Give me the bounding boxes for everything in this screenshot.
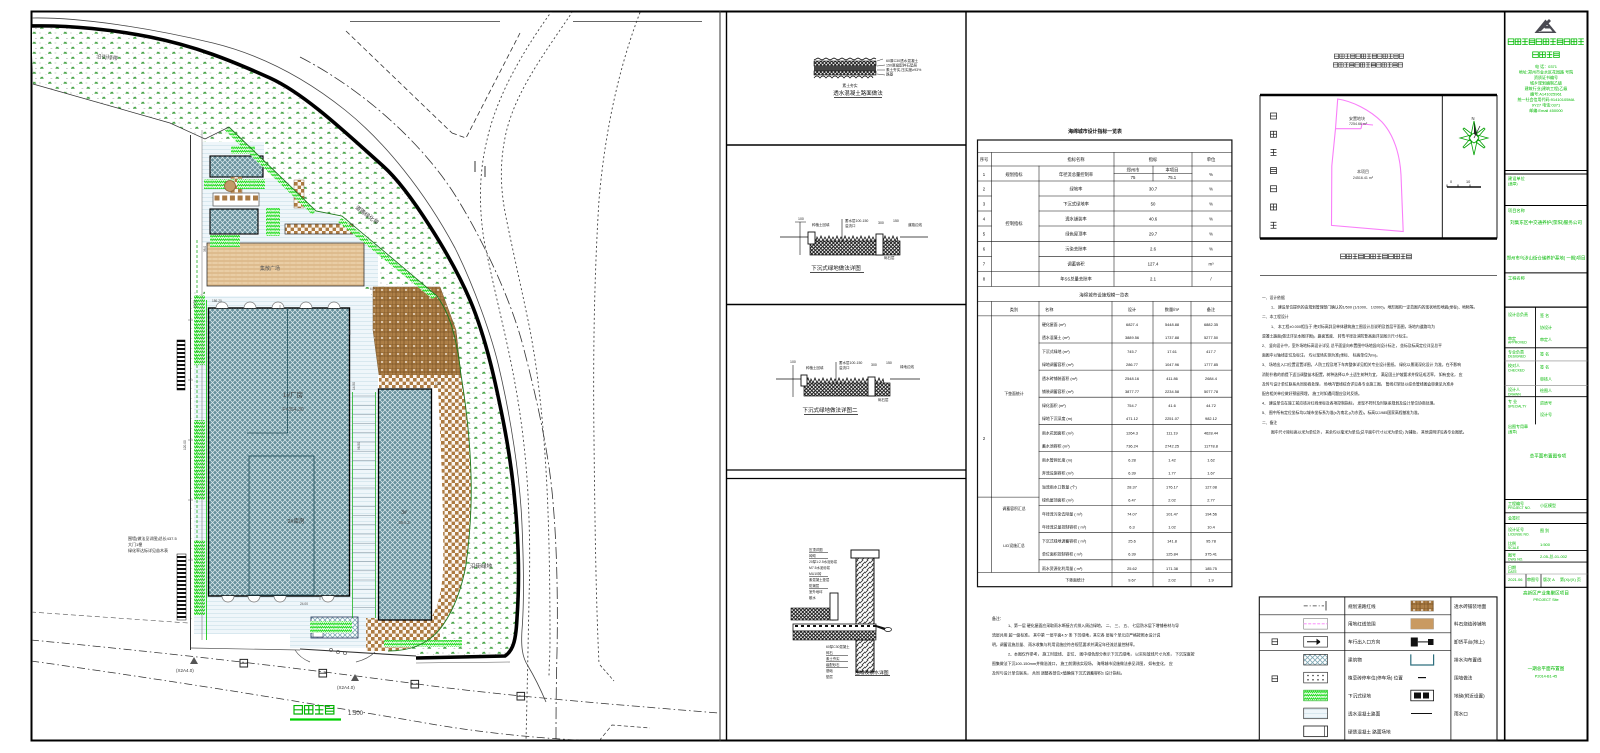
svg-text:6.47: 6.47 xyxy=(1128,498,1136,503)
svg-text:2#库房: 2#库房 xyxy=(287,517,305,525)
svg-text:24516.41 m²: 24516.41 m² xyxy=(1353,176,1374,180)
svg-text:料石烧结砖铺地: 料石烧结砖铺地 xyxy=(1454,621,1487,628)
svg-text:6.3: 6.3 xyxy=(1129,525,1134,530)
svg-text:本项目: 本项目 xyxy=(1357,168,1369,174)
svg-text:种植土回填: 种植土回填 xyxy=(806,365,824,370)
svg-text:设计人: 设计人 xyxy=(1508,386,1520,392)
svg-text:沿街绿地: 沿街绿地 xyxy=(470,562,493,570)
svg-text:资质号: 资质号 xyxy=(1540,400,1552,406)
svg-text:4628.44: 4628.44 xyxy=(1204,430,1219,435)
svg-text:工程名称: 工程名称 xyxy=(1508,275,1525,282)
svg-text:471.12: 471.12 xyxy=(1126,416,1138,421)
svg-text:CHECKED: CHECKED xyxy=(1508,369,1525,373)
svg-text:%: % xyxy=(1209,172,1213,177)
svg-text:417.7: 417.7 xyxy=(1206,349,1216,354)
svg-text:下沉式绿地调蓄容积 ( m³): 下沉式绿地调蓄容积 ( m³) xyxy=(1042,539,1087,544)
svg-text:(盖章): (盖章) xyxy=(1508,429,1517,434)
svg-text:982.12: 982.12 xyxy=(1205,416,1217,421)
svg-text:6.0: 6.0 xyxy=(370,287,375,291)
svg-text:防潮层: 防潮层 xyxy=(809,583,820,588)
svg-text:校对人: 校对人 xyxy=(1508,362,1520,368)
svg-text:碎石: 碎石 xyxy=(826,650,833,655)
svg-text:150: 150 xyxy=(893,219,899,223)
svg-text:F=354.30: F=354.30 xyxy=(282,407,303,413)
svg-text:围墙做法: 围墙做法 xyxy=(1454,675,1473,682)
svg-text:1047.96: 1047.96 xyxy=(1165,362,1179,367)
svg-text:(X2A4.0): (X2A4.0) xyxy=(337,685,355,690)
svg-text:5448.88: 5448.88 xyxy=(1165,322,1179,327)
svg-text:硬质混凝土 路面场地: 硬质混凝土 路面场地 xyxy=(1348,729,1391,736)
svg-text:流层共用 超一级标准。 其中第 一层平面4.5’ 条 下: 流层共用 超一级标准。 其中第 一层平面4.5’ 条 下凹绿地，其它各 层每个单… xyxy=(992,633,1160,638)
svg-text:植草砖停车位(停车场) 位置: 植草砖停车位(停车场) 位置 xyxy=(1348,675,1403,682)
svg-text:3#: 3# xyxy=(401,510,407,516)
svg-text:1.77: 1.77 xyxy=(1168,470,1176,475)
svg-text:郑州市: 郑州市 xyxy=(1127,167,1141,174)
svg-text:会签栏: 会签栏 xyxy=(1508,515,1520,521)
svg-text:硬化屋面 (m²): 硬化屋面 (m²) xyxy=(1042,322,1066,327)
svg-text:年径流总量控制率: 年径流总量控制率 xyxy=(1059,171,1094,178)
svg-text:176.17: 176.17 xyxy=(1166,485,1178,490)
svg-text:1.02: 1.02 xyxy=(1168,525,1176,530)
svg-text:雨水口: 雨水口 xyxy=(1454,711,1468,718)
svg-text:设计号: 设计号 xyxy=(1540,411,1552,417)
svg-text:透水混凝土路面: 透水混凝土路面 xyxy=(1348,711,1381,718)
svg-text:一期总平面布置图: 一期总平面布置图 xyxy=(1528,665,1565,672)
svg-text:7254.66 m²: 7254.66 m² xyxy=(1349,122,1368,126)
svg-text:127.08: 127.08 xyxy=(1205,485,1217,490)
svg-text:5077.78: 5077.78 xyxy=(1204,389,1218,394)
svg-text:下垫面统计: 下垫面统计 xyxy=(1004,391,1024,396)
svg-text:绿地下沉深度 (m): 绿地下沉深度 (m) xyxy=(1042,416,1073,421)
svg-text:蓄水层100-150: 蓄水层100-150 xyxy=(845,218,868,223)
svg-text:194.56: 194.56 xyxy=(1205,512,1217,517)
svg-text:95.78: 95.78 xyxy=(1206,539,1216,544)
svg-text:(盖章): (盖章) xyxy=(1508,181,1518,186)
svg-text:P2014-B1-45: P2014-B1-45 xyxy=(1535,675,1557,679)
svg-text:40.6: 40.6 xyxy=(1149,217,1158,222)
svg-text:邮编:Email 450000: 邮编:Email 450000 xyxy=(1529,107,1563,113)
svg-text:DRAWN: DRAWN xyxy=(1508,393,1521,397)
svg-text:100: 100 xyxy=(790,360,796,364)
svg-text:序号: 序号 xyxy=(980,156,989,163)
svg-text:素土夯实: 素土夯实 xyxy=(842,83,857,88)
svg-text:9.67: 9.67 xyxy=(1128,578,1136,583)
svg-text:集散广场: 集散广场 xyxy=(260,265,280,272)
svg-text:24.00: 24.00 xyxy=(300,602,308,606)
svg-text:资质证书编号: 资质证书编号 xyxy=(1534,74,1558,80)
svg-text:高新区产业集聚区项目: 高新区产业集聚区项目 xyxy=(1523,590,1569,597)
svg-text:名称: 名称 xyxy=(1045,306,1053,313)
svg-text:指标: 指标 xyxy=(1149,156,1158,163)
svg-text:绿化率达标详见苗木表: 绿化率达标详见苗木表 xyxy=(128,547,168,553)
svg-text:透水混凝土路面做法: 透水混凝土路面做法 xyxy=(833,89,883,97)
svg-text:736.24: 736.24 xyxy=(1126,443,1139,448)
svg-text:120.00: 120.00 xyxy=(183,440,187,450)
svg-text:素土夯实: 素土夯实 xyxy=(826,656,840,661)
svg-text:二、备注: 二、备注 xyxy=(1262,420,1277,425)
svg-text:绿色屋顶面积 (m²): 绿色屋顶面积 (m²) xyxy=(1042,498,1074,503)
svg-text:备注：: 备注： xyxy=(992,616,1004,621)
svg-text:150厚级配碎石垫层: 150厚级配碎石垫层 xyxy=(886,63,918,68)
svg-text:6827.4: 6827.4 xyxy=(1126,322,1139,327)
svg-text:74.07: 74.07 xyxy=(1127,512,1137,517)
svg-text:下沉式绿地: 下沉式绿地 xyxy=(1348,693,1371,700)
svg-text:围墙及散水详图: 围墙及散水详图 xyxy=(855,669,889,676)
svg-text:PROJECT Site: PROJECT Site xyxy=(1533,598,1558,602)
svg-text:数量/m²: 数量/m² xyxy=(1165,306,1180,313)
svg-text:2.77: 2.77 xyxy=(1207,498,1215,503)
svg-text:海绵城市设计指标一览表: 海绵城市设计指标一览表 xyxy=(1068,128,1122,135)
svg-text:签 名: 签 名 xyxy=(1540,351,1549,357)
svg-text:砾石层: 砾石层 xyxy=(878,397,889,402)
svg-text:绿地调蓄容积 (m³): 绿地调蓄容积 (m³) xyxy=(1042,362,1074,367)
svg-text:41.6: 41.6 xyxy=(1168,403,1176,408)
svg-text:编号:A141025961: 编号:A141025961 xyxy=(1530,91,1563,97)
svg-text:1.42: 1.42 xyxy=(1168,457,1176,462)
svg-text:75: 75 xyxy=(1131,175,1136,180)
svg-text:弃流设施容积 (m³): 弃流设施容积 (m³) xyxy=(1042,470,1074,475)
svg-text:2、本图仅作参考， 施工时放线、 定位、 图中绿色部分表示下: 2、本图仅作参考， 施工时放线、 定位、 图中绿色部分表示下沉式绿地， 以实际放… xyxy=(1008,652,1195,657)
svg-text:签 名: 签 名 xyxy=(1540,312,1549,318)
svg-text:年SS总量去除率: 年SS总量去除率 xyxy=(1060,276,1092,283)
svg-text:LID设施汇总: LID设施汇总 xyxy=(1003,543,1025,548)
svg-text:111.19: 111.19 xyxy=(1166,430,1177,435)
svg-text:第(X)/(X) 页: 第(X)/(X) 页 xyxy=(1560,576,1581,582)
svg-text:基础: 基础 xyxy=(826,668,833,673)
svg-text:砖砌: 砖砌 xyxy=(809,553,816,558)
svg-text:电 话：0371: 电 话：0371 xyxy=(1535,63,1558,69)
svg-text:年径流污染去除量 ( m³): 年径流污染去除量 ( m³) xyxy=(1042,512,1083,517)
svg-text:年径流总量控制容积 ( m³): 年径流总量控制容积 ( m³) xyxy=(1042,525,1087,530)
svg-text:2-05-总-01-002: 2-05-总-01-002 xyxy=(1540,553,1568,559)
svg-text:备注: 备注 xyxy=(1207,306,1216,313)
svg-text:溢流口: 溢流口 xyxy=(839,365,850,370)
svg-text:出图专用章: 出图专用章 xyxy=(1508,423,1528,429)
svg-text:建筑行业(建筑工程)乙级: 建筑行业(建筑工程)乙级 xyxy=(1525,85,1568,91)
svg-text:53.70: 53.70 xyxy=(193,300,197,308)
svg-text:及时与设计单位联系共同协商处理， 场地内管线综合详见各专业施: 及时与设计单位联系共同协商处理， 场地内管线综合详见各专业施工图， 管线打架处以… xyxy=(1262,381,1454,386)
svg-text:286.77: 286.77 xyxy=(1126,362,1138,367)
svg-text:砾石层: 砾石层 xyxy=(884,255,895,260)
svg-text:171.38: 171.38 xyxy=(1166,566,1178,571)
svg-text:SPECIALTY: SPECIALTY xyxy=(1508,405,1527,409)
svg-text:LICENSE NO.: LICENSE NO. xyxy=(1508,533,1530,537)
svg-text:185.75: 185.75 xyxy=(1205,566,1217,571)
svg-text:版次 A: 版次 A xyxy=(1543,576,1555,582)
svg-text:1、第一层 硬化屋面应采取雨水断接方式排入周边绿地， 二、: 1、第一层 硬化屋面应采取雨水断接方式排入周边绿地， 二、 三、 五、 七层防水… xyxy=(1008,623,1179,628)
svg-text:消防扑救的前提下适当调整苗木配置，树种选择以乡土适生树种为宜: 消防扑救的前提下适当调整苗木配置，树种选择以乡土适生树种为宜， 满足固土护坡要求… xyxy=(1262,372,1463,377)
svg-text:3、 场地出入口位置设置详图，人防工程及地下车库整体详见相关: 3、 场地出入口位置设置详图，人防工程及地下车库整体详见相关专业设计图纸。 绿化… xyxy=(1262,362,1461,367)
svg-text:设计总负责: 设计总负责 xyxy=(1508,311,1528,317)
svg-text:道路边线: 道路边线 xyxy=(908,222,922,227)
svg-text:1、 本工程±0.000相当于 绝对标高詳见单体建筑施工图: 1、 本工程±0.000相当于 绝对标高詳见单体建筑施工图设计总说明及首层平面图… xyxy=(1271,324,1435,329)
svg-text:溢流口: 溢流口 xyxy=(845,223,856,228)
svg-text:N: N xyxy=(1472,116,1475,121)
svg-text:2.02: 2.02 xyxy=(1168,498,1176,503)
svg-text:雨水资源化利用量 ( m³): 雨水资源化利用量 ( m³) xyxy=(1042,566,1083,571)
svg-text:地址:郑州市金水区花园路 号院: 地址:郑州市金水区花园路 号院 xyxy=(1519,69,1573,75)
svg-text:配合相关单位做好预留预埋， 施工时如遇问题应及时反馈。: 配合相关单位做好预留预埋， 施工时如遇问题应及时反馈。 xyxy=(1262,391,1362,396)
svg-text:10: 10 xyxy=(1466,180,1470,184)
svg-text:1.67: 1.67 xyxy=(1207,470,1215,475)
svg-text:城乡规划编制乙级: 城乡规划编制乙级 xyxy=(1530,80,1562,86)
svg-text:1737.88: 1737.88 xyxy=(1165,335,1179,340)
svg-text:路基: 路基 xyxy=(886,72,894,77)
svg-text:刘集东区中交通养护(荥阳)服务公司: 刘集东区中交通养护(荥阳)服务公司 xyxy=(1510,219,1582,226)
svg-text:4、 建设单位在施工前应核对红线坐标及各项控制指标， 发现不: 4、 建设单位在施工前应核对红线坐标及各项控制指标， 发现不符时及时联系规划及设… xyxy=(1262,401,1437,406)
svg-text:雨水管网长度 (m): 雨水管网长度 (m) xyxy=(1042,457,1073,462)
svg-text:6.28: 6.28 xyxy=(1128,457,1136,462)
svg-text:本项目: 本项目 xyxy=(1166,167,1179,174)
svg-text:2、 竖向设计中，室外场地标高设计详见 总平面竖向布置图中: 2、 竖向设计中，室外场地标高设计详见 总平面竖向布置图中场地竖向设计标注， 坐… xyxy=(1262,343,1442,348)
svg-text:141.8: 141.8 xyxy=(1167,539,1177,544)
svg-text:项目名称: 项目名称 xyxy=(1508,207,1525,214)
svg-text:明，调蓄设施总量、 雨水收集与利用设施应符合规范要求并满足年: 明，调蓄设施总量、 雨水收集与利用设施应符合规范要求并满足年径流总量控制率。 xyxy=(992,642,1137,647)
svg-text:及时与设计单位联系， 共同 调整各部位X值确保下沉式调蓄容: 及时与设计单位联系， 共同 调整各部位X值确保下沉式调蓄容积≥ 设计指标。 xyxy=(992,671,1124,676)
svg-text:150: 150 xyxy=(886,361,892,365)
svg-text:素土夯实,压实度≥93%: 素土夯实,压实度≥93% xyxy=(886,67,922,72)
svg-text:地磅(附近设置): 地磅(附近设置) xyxy=(1454,693,1485,700)
svg-text:建设单位: 建设单位 xyxy=(1508,175,1525,182)
svg-text:协设计: 协设计 xyxy=(1540,324,1552,330)
svg-text:车行出入口方向: 车行出入口方向 xyxy=(1348,639,1381,646)
svg-text:3889.56: 3889.56 xyxy=(1125,335,1139,340)
svg-text:蓄水池容积 (m³): 蓄水池容积 (m³) xyxy=(1042,443,1070,448)
svg-text:用地红线范围: 用地红线范围 xyxy=(1348,621,1376,628)
svg-text:压顶详图: 压顶详图 xyxy=(809,547,823,552)
svg-text:1:500: 1:500 xyxy=(348,711,364,717)
svg-text:雨水花园面积 (m²): 雨水花园面积 (m²) xyxy=(1042,430,1074,435)
svg-text:14.50: 14.50 xyxy=(352,382,356,390)
svg-text:9Y27 电话:0371: 9Y27 电话:0371 xyxy=(1532,102,1561,108)
svg-text:下沉式绿地做法详图二: 下沉式绿地做法详图二 xyxy=(802,406,858,414)
svg-text:DATE: DATE xyxy=(1508,570,1518,574)
svg-text:单位: 单位 xyxy=(1207,156,1216,163)
svg-text:级配砂石: 级配砂石 xyxy=(826,662,840,667)
svg-text:1:500: 1:500 xyxy=(1540,542,1551,547)
svg-text:卸货平台(地上): 卸货平台(地上) xyxy=(1454,639,1485,646)
svg-text:总平面布置图专项: 总平面布置图专项 xyxy=(1530,453,1567,460)
svg-text:下垫面统计: 下垫面统计 xyxy=(1065,578,1085,583)
svg-text:绿色屋顶率: 绿色屋顶率 xyxy=(1065,231,1087,238)
svg-text:100: 100 xyxy=(798,217,804,221)
svg-text:25.62: 25.62 xyxy=(1127,566,1137,571)
svg-text:2251.07: 2251.07 xyxy=(1165,416,1179,421)
svg-text:2234.58: 2234.58 xyxy=(1165,389,1179,394)
svg-text:审定人: 审定人 xyxy=(1540,336,1552,342)
svg-text:96.50: 96.50 xyxy=(357,442,361,450)
svg-text:0: 0 xyxy=(1450,180,1452,184)
svg-text:6.39: 6.39 xyxy=(1128,552,1136,557)
svg-text:28.37: 28.37 xyxy=(1127,485,1137,490)
svg-text:下沉式绿地 (m²): 下沉式绿地 (m²) xyxy=(1042,349,1070,354)
svg-text:二、本工程设计: 二、本工程设计 xyxy=(1262,314,1289,319)
svg-text:2.02: 2.02 xyxy=(1168,578,1176,583)
svg-text:12.5: 12.5 xyxy=(435,382,441,386)
svg-text:%: % xyxy=(1209,232,1213,237)
svg-text:5277.50: 5277.50 xyxy=(1204,335,1219,340)
svg-text:统一社会信用代码:91410105MA: 统一社会信用代码:91410105MA xyxy=(1518,96,1575,102)
svg-text:类别: 类别 xyxy=(1010,306,1018,313)
svg-text:2021.06: 2021.06 xyxy=(1508,577,1523,582)
svg-text:M7.5水泥砂浆: M7.5水泥砂浆 xyxy=(809,565,831,570)
svg-text:745.7: 745.7 xyxy=(1127,349,1137,354)
svg-text:污染去除率: 污染去除率 xyxy=(1065,246,1087,253)
svg-text:2684.4: 2684.4 xyxy=(1205,376,1218,381)
svg-text:指标名称: 指标名称 xyxy=(1067,156,1085,163)
svg-text:6.39: 6.39 xyxy=(1128,470,1136,475)
svg-text:种植土回填: 种植土回填 xyxy=(812,222,830,227)
svg-text:127.4: 127.4 xyxy=(1148,262,1159,267)
svg-text:1#厂房: 1#厂房 xyxy=(283,390,303,399)
svg-text:调蓄容积汇总: 调蓄容积汇总 xyxy=(1002,506,1025,511)
svg-text:绿地边线: 绿地边线 xyxy=(900,364,914,369)
svg-text:25.6: 25.6 xyxy=(1128,539,1136,544)
svg-text:室外地坪: 室外地坪 xyxy=(809,589,823,594)
svg-text:30.7: 30.7 xyxy=(1149,187,1158,192)
svg-text:蓄水层100-150: 蓄水层100-150 xyxy=(839,360,862,365)
svg-text:1.9: 1.9 xyxy=(1208,578,1213,583)
svg-text:专 业: 专 业 xyxy=(1508,398,1517,404)
svg-text:2.6: 2.6 xyxy=(1150,247,1157,252)
svg-text:38.0: 38.0 xyxy=(203,246,207,252)
svg-text:%: % xyxy=(1209,217,1213,222)
svg-text:411.86: 411.86 xyxy=(1166,376,1178,381)
svg-text:设计: 设计 xyxy=(1128,306,1136,313)
svg-text:375.41: 375.41 xyxy=(1205,552,1217,557)
svg-text:3877.77: 3877.77 xyxy=(1125,389,1139,394)
svg-text:%: % xyxy=(1209,247,1213,252)
svg-text:44.72: 44.72 xyxy=(1206,403,1216,408)
svg-text:下沉式绿地率: 下沉式绿地率 xyxy=(1063,201,1089,208)
svg-text:50: 50 xyxy=(1151,202,1156,207)
svg-text:10.4: 10.4 xyxy=(1207,525,1215,530)
svg-text:1264.3: 1264.3 xyxy=(1126,430,1138,435)
svg-text:调蓄容积: 调蓄容积 xyxy=(1067,261,1085,268)
svg-text:大门1樘: 大门1樘 xyxy=(128,541,142,547)
svg-text:绿化面积 (m²): 绿化面积 (m²) xyxy=(1042,403,1066,408)
svg-text:SCALE: SCALE xyxy=(1508,546,1520,550)
svg-text:APPROVED: APPROVED xyxy=(1508,341,1527,345)
svg-text:透水砖铺装面积 (m²): 透水砖铺装面积 (m²) xyxy=(1042,376,1078,381)
svg-text:规划指标: 规划指标 xyxy=(1005,171,1023,178)
svg-text:安置地块: 安置地块 xyxy=(1349,115,1365,121)
svg-text:排水沟布置线: 排水沟布置线 xyxy=(1454,657,1482,664)
svg-text:11778.8: 11778.8 xyxy=(1204,443,1218,448)
svg-text:海绵城市设施规模一览表: 海绵城市设施规模一览表 xyxy=(1079,292,1129,299)
svg-text:审图号: 审图号 xyxy=(1527,576,1539,582)
svg-text:垫层: 垫层 xyxy=(826,674,833,679)
svg-text:散水: 散水 xyxy=(809,595,816,600)
svg-text:绿地率: 绿地率 xyxy=(1070,186,1084,193)
svg-text:DWG NO.: DWG NO. xyxy=(1508,558,1523,562)
svg-text:1、 建设单位提供的由规划管理部门确认的1/500 (1/1: 1、 建设单位提供的由规划管理部门确认的1/500 (1/1000、 1/200… xyxy=(1271,305,1477,310)
svg-text:%: % xyxy=(1209,202,1213,207)
svg-text:审核人: 审核人 xyxy=(1540,376,1552,382)
svg-text:DESIGNED: DESIGNED xyxy=(1508,355,1526,359)
svg-text:郑州市乌涉山街仓储养护基地( 一期)项目: 郑州市乌涉山街仓储养护基地( 一期)项目 xyxy=(1507,255,1586,262)
svg-text:图 别: 图 别 xyxy=(1540,527,1549,533)
svg-text:6882.35: 6882.35 xyxy=(1204,322,1218,327)
svg-text:透水砖铺装地面: 透水砖铺装地面 xyxy=(1454,603,1487,610)
svg-text:透水混凝土 (m²): 透水混凝土 (m²) xyxy=(1042,335,1070,340)
svg-text:控制指标: 控制指标 xyxy=(1005,220,1023,227)
svg-text:17.61: 17.61 xyxy=(1167,349,1177,354)
svg-text:1777.85: 1777.85 xyxy=(1204,362,1218,367)
svg-text:图集做法下沉100-150mm并做溢流口， 施工前需核实现场: 图集做法下沉100-150mm并做溢流口， 施工前需核实现场， 海绵城市设施做法… xyxy=(992,661,1173,666)
svg-text:5、 图中所有定位坐标均以城市坐标系为准(x为南北,y为东西: 5、 图中所有定位坐标均以城市坐标系为准(x为南北,y为东西)，标高以1985国… xyxy=(1262,410,1421,415)
svg-text:75.1: 75.1 xyxy=(1168,175,1177,180)
svg-text:规划道路红线: 规划道路红线 xyxy=(1348,603,1376,610)
svg-text:设计证号: 设计证号 xyxy=(1508,526,1524,532)
svg-text:下沉式绿地做法详图: 下沉式绿地做法详图 xyxy=(811,264,861,272)
svg-text:PROJECT NO.: PROJECT NO. xyxy=(1508,506,1531,510)
svg-text:%: % xyxy=(1209,187,1213,192)
svg-text:2.1: 2.1 xyxy=(1150,277,1157,282)
svg-text:2742.25: 2742.25 xyxy=(1165,443,1179,448)
svg-text:1.62: 1.62 xyxy=(1207,457,1215,462)
svg-text:混凝土路面(做法详见本图详图)，路面宽度、 转弯半径及消防登: 混凝土路面(做法详见本图详图)，路面宽度、 转弯半径及消防登高面详见图示尺寸标注… xyxy=(1262,333,1410,338)
svg-text:(X2A4.0): (X2A4.0) xyxy=(176,668,194,673)
svg-text:溢流雨水口数量 (个): 溢流雨水口数量 (个) xyxy=(1042,485,1078,490)
svg-text:125.84: 125.84 xyxy=(1166,552,1179,557)
svg-text:MU10砖: MU10砖 xyxy=(809,571,822,576)
svg-text:建筑物: 建筑物 xyxy=(1348,657,1362,664)
svg-text:铺装调蓄容积 (m³): 铺装调蓄容积 (m³) xyxy=(1042,389,1074,394)
svg-text:图中尺寸除标高以米为单位外， 其余均以毫米为单位(总平面中尺: 图中尺寸除标高以米为单位外， 其余均以毫米为单位(总平面中尺寸以米为单位) 为辅… xyxy=(1271,429,1467,434)
svg-text:60厚C30混凝土: 60厚C30混凝土 xyxy=(826,644,850,649)
svg-text:签 名: 签 名 xyxy=(1540,364,1549,370)
svg-text:素混凝土垫层: 素混凝土垫层 xyxy=(809,577,830,582)
svg-text:300: 300 xyxy=(871,363,877,367)
svg-text:186.20: 186.20 xyxy=(212,299,222,303)
svg-text:m³: m³ xyxy=(1208,262,1214,267)
svg-text:2548.16: 2548.16 xyxy=(1125,376,1139,381)
svg-text:300: 300 xyxy=(878,221,884,225)
svg-text:60厚C30透水混凝土: 60厚C30透水混凝土 xyxy=(886,58,919,63)
svg-text:透水铺装率: 透水铺装率 xyxy=(1065,216,1087,223)
svg-text:小区模型: 小区模型 xyxy=(1540,502,1556,508)
svg-text:围墙(做法见详图)总长437.5: 围墙(做法见详图)总长437.5 xyxy=(128,535,177,541)
svg-text:绘图人: 绘图人 xyxy=(1540,387,1552,393)
svg-text:面图中以轴线定位及标注， 均以现场实测为准(坐标、 标高单位: 面图中以轴线定位及标注， 均以现场实测为准(坐标、 标高单位为m)。 xyxy=(1262,353,1380,358)
svg-text:101.47: 101.47 xyxy=(1166,512,1178,517)
svg-text:20厚1:2.5水泥砂浆: 20厚1:2.5水泥砂浆 xyxy=(809,559,838,564)
svg-text:单位面积控制容积 ( m³): 单位面积控制容积 ( m³) xyxy=(1042,552,1083,557)
svg-text:354.3: 354.3 xyxy=(398,520,410,525)
svg-text:一、设计依据: 一、设计依据 xyxy=(1262,295,1285,300)
svg-text:29.7: 29.7 xyxy=(1149,232,1158,237)
svg-text:754.7: 754.7 xyxy=(1127,403,1137,408)
